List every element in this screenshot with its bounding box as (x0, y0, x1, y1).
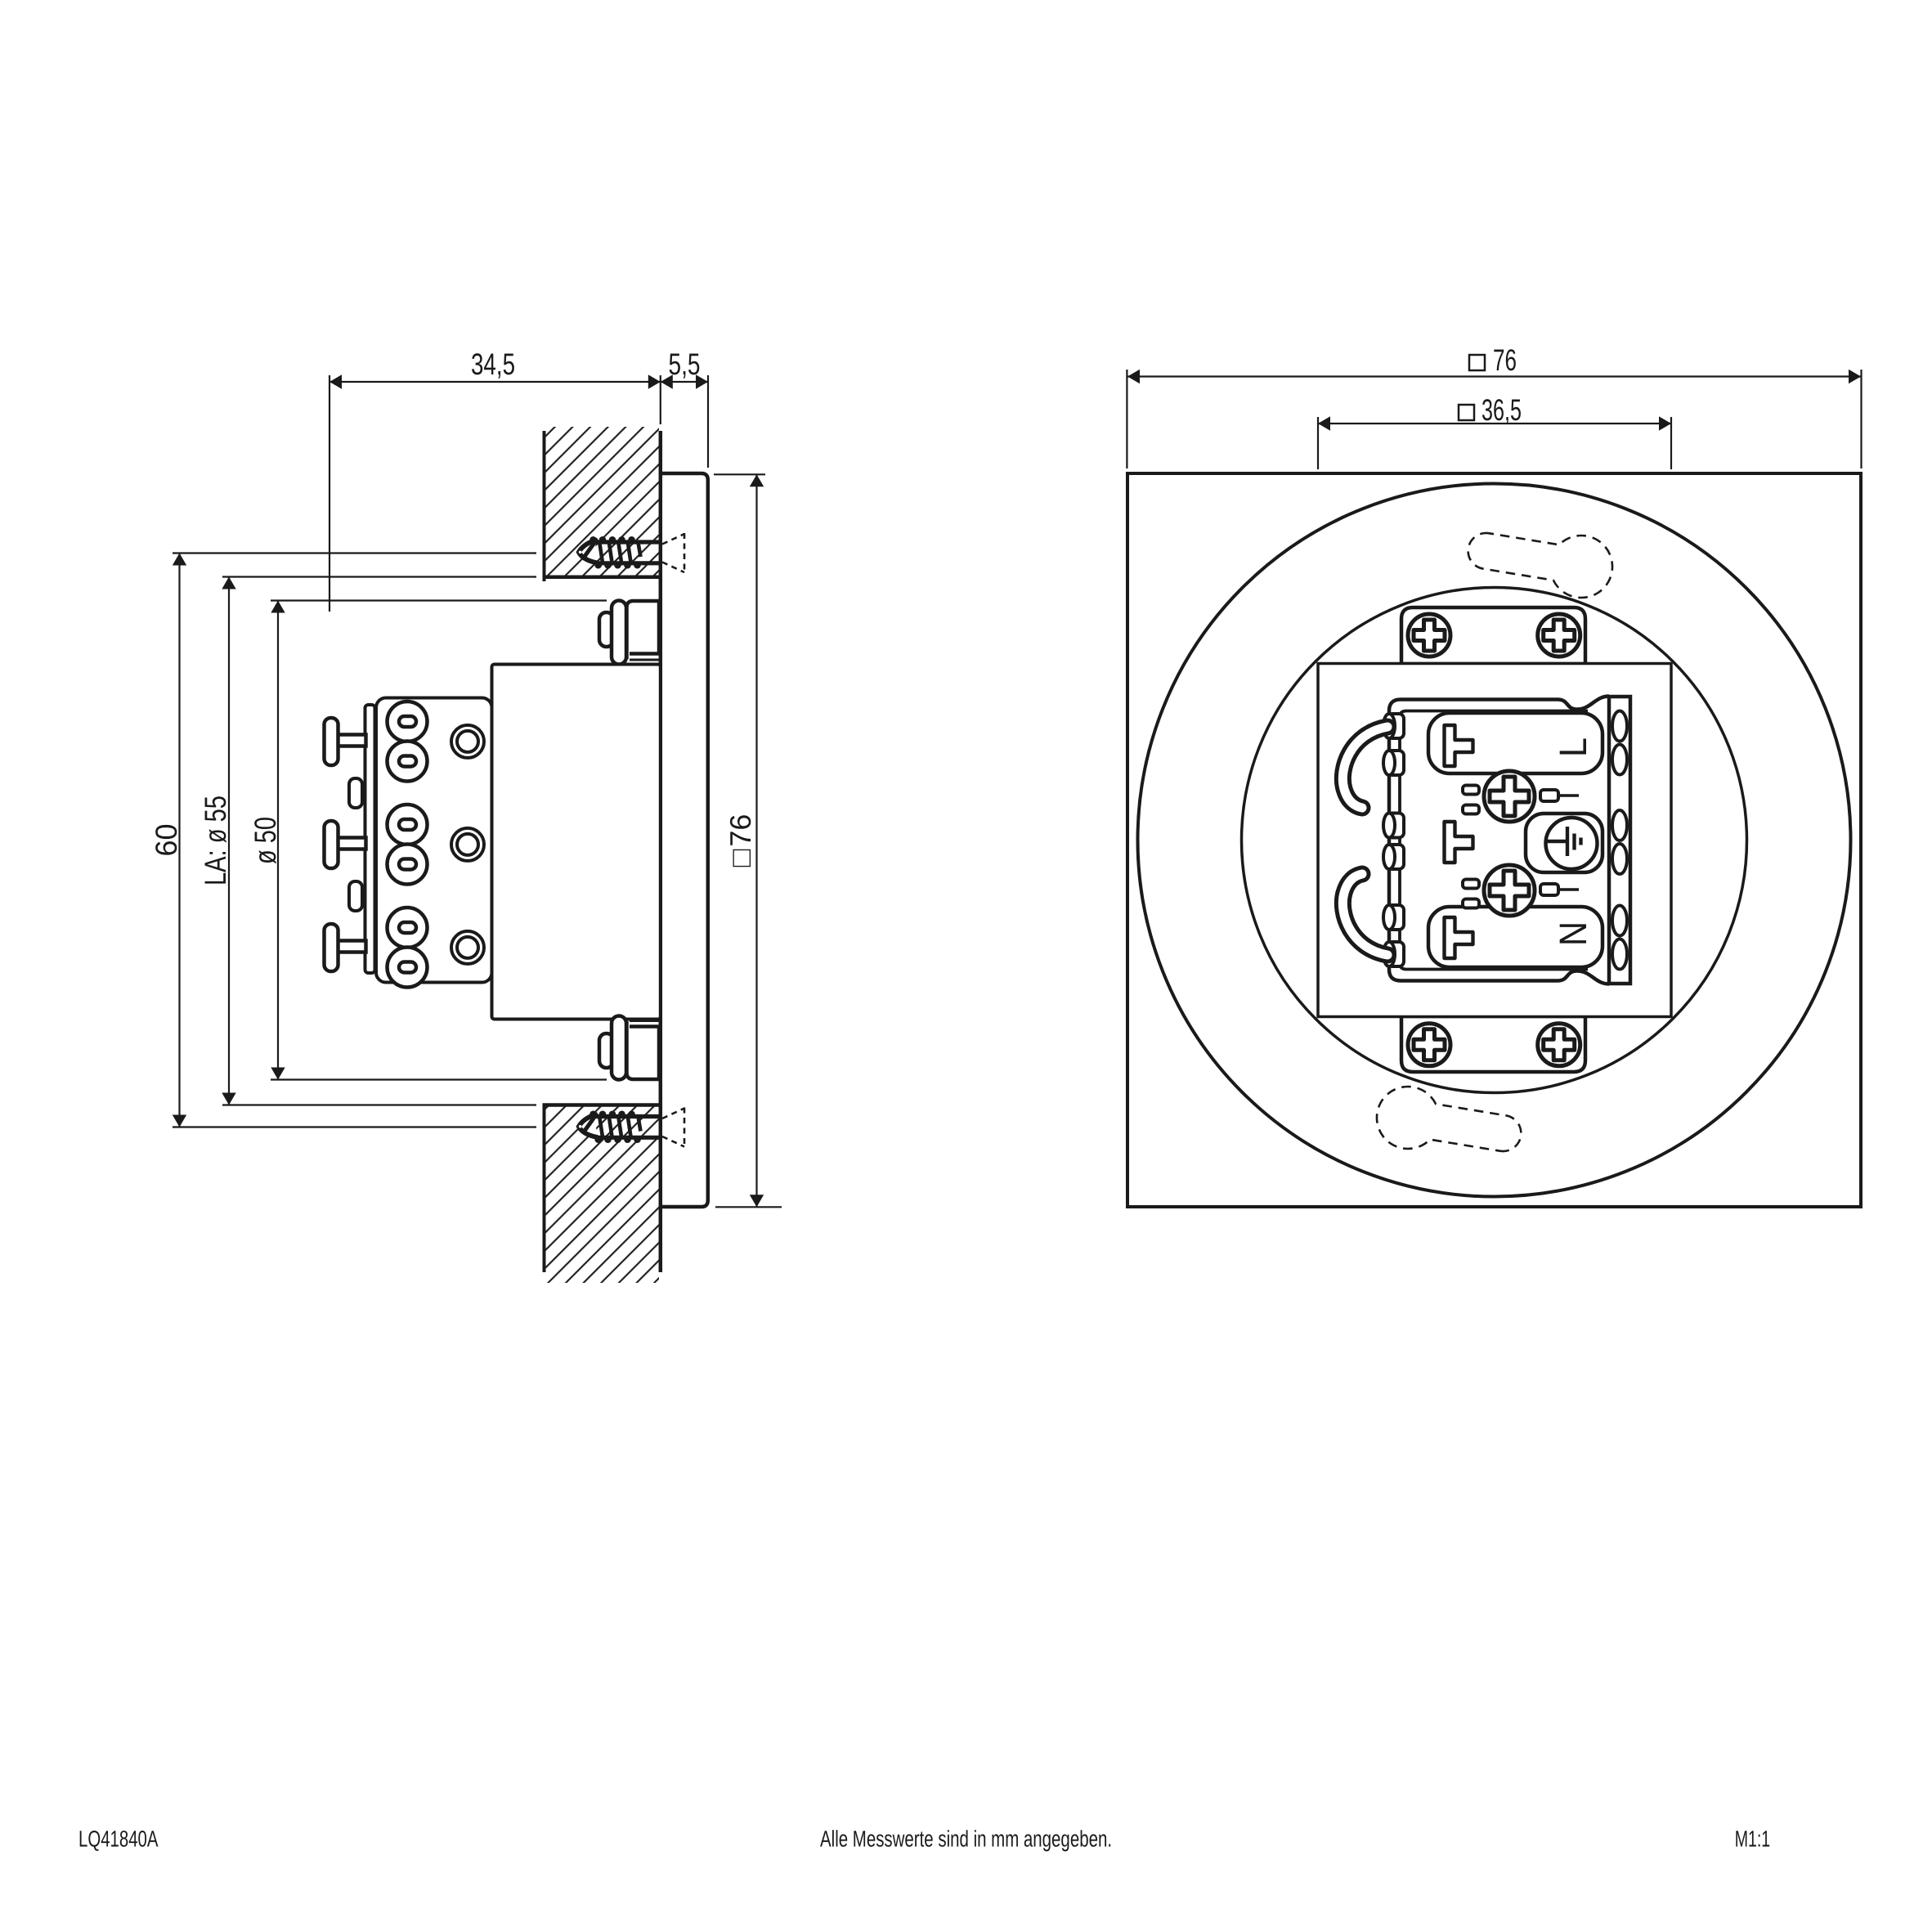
svg-text:LA: ø 55: LA: ø 55 (199, 796, 232, 885)
svg-text:LQ41840A: LQ41840A (78, 1827, 159, 1852)
svg-text:36,5: 36,5 (1481, 393, 1522, 427)
svg-text:Alle Messwerte sind in mm ange: Alle Messwerte sind in mm angegeben. (820, 1827, 1112, 1852)
svg-text:76: 76 (1493, 343, 1517, 377)
svg-text:□ 76: □ 76 (724, 814, 757, 867)
svg-text:L: L (1551, 737, 1594, 757)
svg-text:N: N (1551, 921, 1594, 946)
svg-text:60: 60 (150, 824, 183, 857)
svg-text:M1:1: M1:1 (1735, 1827, 1771, 1852)
svg-text:5,5: 5,5 (669, 347, 701, 381)
svg-text:34,5: 34,5 (471, 347, 515, 381)
svg-text:ø 50: ø 50 (249, 817, 282, 864)
